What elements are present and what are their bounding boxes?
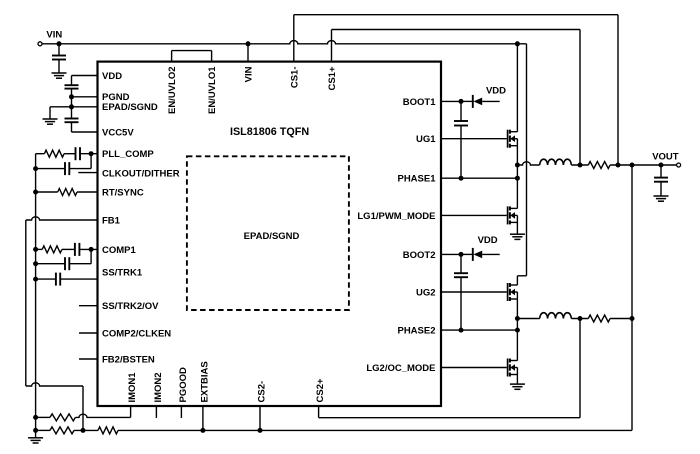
svg-text:COMP1: COMP1 bbox=[102, 245, 137, 256]
svg-text:IMON1: IMON1 bbox=[127, 372, 138, 403]
svg-text:VDD: VDD bbox=[478, 235, 498, 246]
svg-text:VIN: VIN bbox=[244, 66, 255, 82]
svg-text:EPAD/SGND: EPAD/SGND bbox=[244, 231, 300, 242]
svg-text:PGOOD: PGOOD bbox=[178, 367, 189, 403]
svg-text:IMON2: IMON2 bbox=[153, 372, 164, 402]
svg-text:VOUT: VOUT bbox=[652, 152, 679, 163]
svg-text:RT/SYNC: RT/SYNC bbox=[102, 187, 144, 198]
svg-text:VDD: VDD bbox=[486, 85, 506, 96]
svg-text:PLL_COMP: PLL_COMP bbox=[102, 149, 154, 160]
svg-text:CLKOUT/DITHER: CLKOUT/DITHER bbox=[102, 169, 180, 180]
svg-text:SS/TRK1: SS/TRK1 bbox=[102, 267, 143, 278]
svg-text:PHASE1: PHASE1 bbox=[397, 174, 436, 185]
svg-text:EN/UVLO1: EN/UVLO1 bbox=[207, 66, 218, 114]
svg-text:BOOT1: BOOT1 bbox=[403, 97, 436, 108]
svg-text:VDD: VDD bbox=[102, 71, 122, 82]
svg-text:FB1: FB1 bbox=[102, 215, 121, 226]
svg-text:LG2/OC_MODE: LG2/OC_MODE bbox=[366, 363, 435, 374]
svg-text:CS2+: CS2+ bbox=[315, 378, 326, 402]
svg-text:ISL81806 TQFN: ISL81806 TQFN bbox=[230, 126, 309, 138]
svg-text:EPAD/SGND: EPAD/SGND bbox=[102, 102, 158, 113]
svg-text:LG1/PWM_MODE: LG1/PWM_MODE bbox=[357, 211, 435, 222]
svg-text:UG2: UG2 bbox=[416, 287, 436, 298]
svg-text:SS/TRK2/OV: SS/TRK2/OV bbox=[102, 301, 159, 312]
svg-text:EXTBIAS: EXTBIAS bbox=[199, 361, 210, 402]
svg-text:EN/UVLO2: EN/UVLO2 bbox=[167, 67, 178, 115]
svg-text:FB2/BSTEN: FB2/BSTEN bbox=[102, 354, 155, 365]
svg-text:PHASE2: PHASE2 bbox=[397, 326, 435, 337]
svg-text:CS1+: CS1+ bbox=[327, 66, 338, 90]
svg-text:CS1-: CS1- bbox=[289, 67, 300, 89]
svg-text:VIN: VIN bbox=[46, 30, 62, 41]
svg-text:VCC5V: VCC5V bbox=[102, 127, 134, 138]
svg-text:BOOT2: BOOT2 bbox=[403, 250, 436, 261]
svg-text:CS2-: CS2- bbox=[257, 381, 268, 403]
svg-text:COMP2/CLKEN: COMP2/CLKEN bbox=[102, 328, 171, 339]
svg-text:UG1: UG1 bbox=[416, 134, 436, 145]
